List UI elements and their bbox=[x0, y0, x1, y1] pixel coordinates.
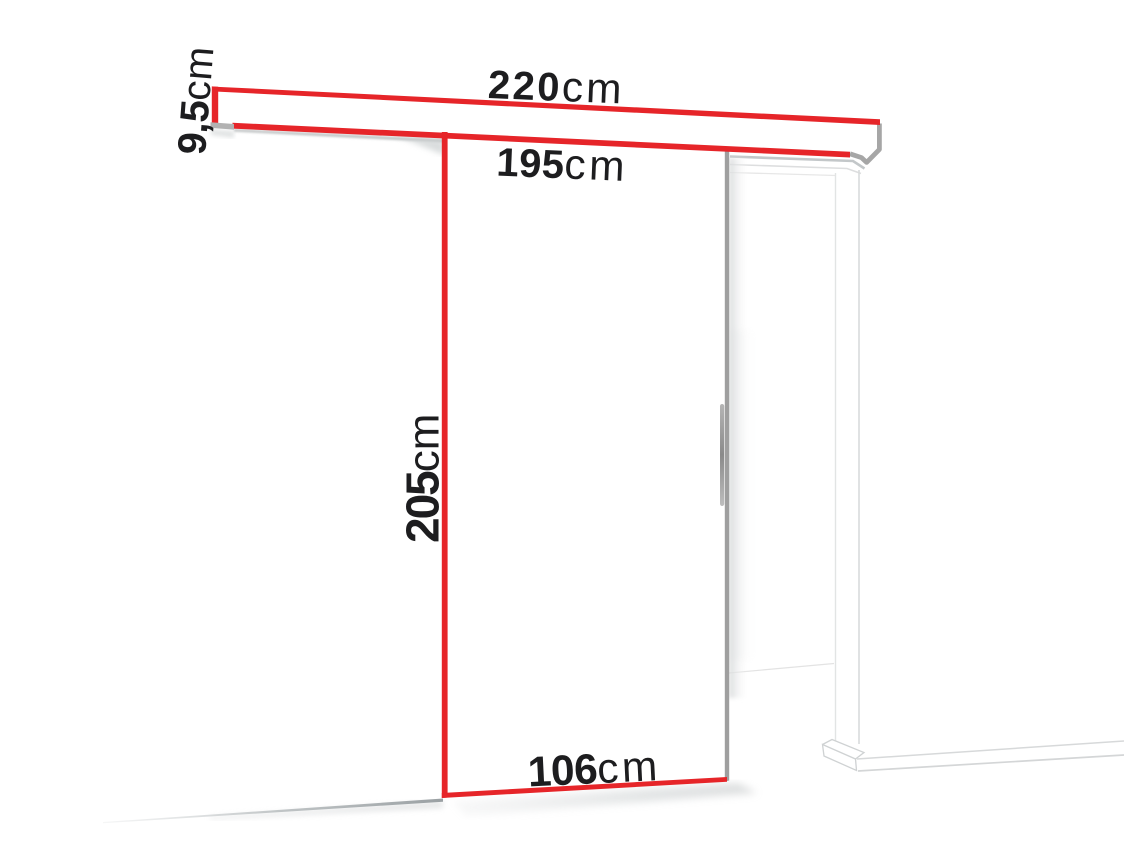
svg-text:9,5cm: 9,5cm bbox=[170, 45, 222, 157]
svg-text:220cm: 220cm bbox=[487, 61, 625, 113]
svg-text:205cm: 205cm bbox=[397, 414, 449, 543]
svg-text:106cm: 106cm bbox=[527, 743, 662, 796]
svg-text:195cm: 195cm bbox=[496, 139, 629, 191]
